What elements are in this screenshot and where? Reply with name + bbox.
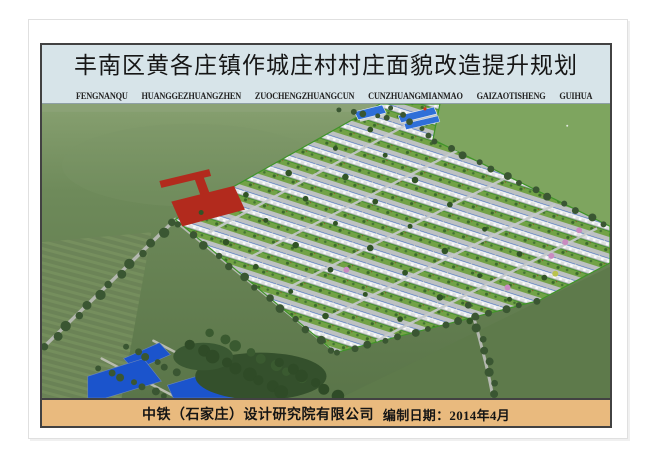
tree (533, 298, 540, 305)
tree (159, 228, 169, 238)
tree (442, 322, 449, 329)
tree (363, 292, 368, 297)
tree (292, 242, 299, 249)
tree (322, 313, 329, 320)
tree (425, 133, 431, 139)
tree (138, 383, 145, 390)
tree (135, 348, 142, 355)
tree (466, 318, 473, 325)
tree (548, 253, 554, 259)
tree (388, 105, 393, 110)
tree (384, 115, 390, 121)
tree (425, 326, 431, 332)
tree (431, 139, 437, 145)
tree (402, 270, 408, 276)
tree (397, 316, 403, 322)
tree (225, 263, 233, 270)
tree (375, 113, 380, 118)
tree (343, 267, 349, 273)
tree (505, 285, 511, 291)
tree (124, 259, 134, 269)
footer-band: 中铁（石家庄）设计研究院有限公司 编制日期：2014年4月 (42, 398, 610, 426)
tree (328, 267, 334, 273)
tree (334, 350, 340, 356)
tree (543, 193, 551, 201)
tree (576, 227, 582, 233)
tree (359, 111, 366, 118)
tree (318, 384, 329, 395)
tree (54, 332, 63, 341)
bird-speck (566, 125, 568, 127)
tree (230, 362, 242, 374)
tree (131, 379, 137, 385)
tree (333, 221, 338, 226)
tree (139, 250, 147, 257)
red-flag (423, 107, 426, 110)
compile-date: 编制日期：2014年4月 (383, 405, 510, 424)
tree (104, 281, 112, 288)
tree (561, 201, 567, 207)
tree (263, 218, 268, 223)
tree (206, 350, 220, 364)
tree (216, 253, 222, 259)
tree (352, 345, 359, 352)
tree (285, 170, 292, 177)
tree (487, 166, 494, 173)
tree (175, 221, 181, 227)
tree (76, 312, 84, 319)
aerial-rendering-svg (42, 104, 610, 398)
tree (400, 112, 406, 118)
tree (480, 336, 487, 343)
tree (367, 127, 373, 133)
tree (247, 348, 256, 356)
tree (328, 347, 334, 353)
tree (190, 231, 198, 238)
tree (372, 199, 378, 205)
tree (420, 126, 425, 131)
tree (367, 245, 374, 252)
tree (302, 326, 310, 333)
tree (486, 358, 494, 366)
tree (256, 354, 266, 364)
tree (251, 284, 257, 290)
tree (342, 174, 349, 181)
tree (266, 294, 274, 301)
tree (82, 301, 91, 310)
tree (333, 146, 338, 151)
tree (442, 248, 449, 255)
tree (288, 289, 293, 294)
tree (516, 302, 522, 308)
tree (168, 219, 176, 226)
tree (117, 270, 126, 279)
tree (490, 390, 498, 398)
tree (477, 159, 483, 165)
tree (351, 109, 357, 115)
tree (185, 340, 195, 350)
tree (437, 294, 444, 301)
tree (482, 227, 487, 232)
tree (199, 210, 204, 215)
tree (109, 370, 116, 377)
tree (491, 380, 498, 387)
title-band: 丰南区黄各庄镇作城庄村村庄面貌改造提升规划 FENGNANQU HUANGGEZ… (42, 45, 610, 104)
tree (504, 172, 512, 180)
tree (481, 347, 488, 354)
pinyin-subtitle: FENGNANQU HUANGGEZHUANGZHEN ZUOCHENGZHUA… (76, 91, 592, 101)
tree (95, 290, 105, 300)
subtitle-row: FENGNANQU HUANGGEZHUANGZHEN ZUOCHENGZHUA… (42, 77, 610, 103)
tree (572, 207, 579, 214)
tree (383, 153, 388, 158)
tree (485, 310, 492, 317)
planning-poster: 丰南区黄各庄镇作城庄村村庄面貌改造提升规划 FENGNANQU HUANGGEZ… (40, 43, 612, 428)
tree (412, 177, 419, 184)
tree (459, 151, 467, 159)
design-company: 中铁（石家庄）设计研究院有限公司 (142, 404, 374, 424)
tree (336, 107, 341, 112)
tree (95, 365, 101, 371)
poster-title: 丰南区黄各庄镇作城庄村村庄面貌改造提升规划 (42, 54, 610, 77)
tree (408, 224, 413, 229)
tree (541, 275, 547, 281)
tree (412, 329, 420, 337)
tree (199, 241, 208, 250)
tree (123, 344, 129, 350)
tree (253, 375, 263, 385)
tree (146, 239, 155, 248)
tree (253, 264, 259, 270)
tree (275, 358, 284, 367)
tree (243, 192, 249, 198)
tree (394, 333, 401, 340)
tree (161, 364, 168, 371)
tree (61, 321, 71, 331)
tree (292, 316, 298, 322)
tree (472, 323, 481, 332)
tree (552, 271, 558, 277)
tree (311, 378, 320, 387)
tree (447, 202, 453, 208)
village-aerial-rendering (42, 104, 610, 398)
tree (152, 387, 160, 395)
tree (533, 186, 540, 193)
tree (205, 329, 214, 337)
tree (588, 214, 596, 222)
tree (173, 368, 181, 376)
tree (454, 317, 462, 325)
tree (295, 370, 308, 382)
tree (485, 368, 494, 377)
tree (116, 374, 124, 382)
tree (303, 196, 309, 202)
tree (382, 338, 388, 344)
tree (141, 353, 149, 361)
tree (601, 221, 607, 227)
tree (517, 251, 523, 257)
tree (240, 273, 249, 282)
tree (477, 273, 482, 278)
tree (363, 341, 371, 349)
tree (507, 297, 512, 302)
tree (317, 336, 326, 345)
tree (516, 180, 522, 186)
tree (448, 145, 455, 152)
tree (503, 305, 511, 313)
tree (406, 118, 413, 125)
tree (229, 340, 241, 351)
tree (223, 239, 230, 246)
tree (465, 302, 472, 309)
poster-sheet: 丰南区黄各庄镇作城庄村村庄面貌改造提升规划 FENGNANQU HUANGGEZ… (28, 19, 628, 439)
tree (562, 239, 568, 245)
tree (155, 359, 161, 365)
tree (276, 304, 285, 313)
tree (220, 334, 230, 344)
